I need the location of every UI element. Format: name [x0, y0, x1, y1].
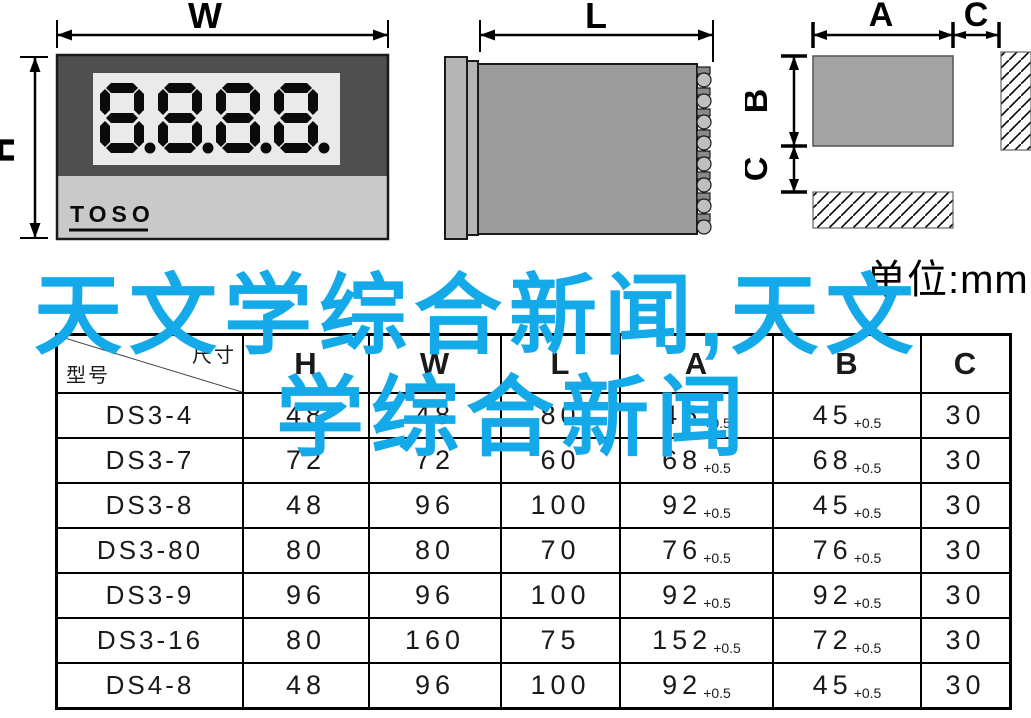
- value-cell-c: 30: [922, 529, 1009, 572]
- cell-value: 92: [662, 670, 702, 701]
- cell-value: 76: [813, 535, 853, 566]
- cell-value: DS3-16: [97, 625, 203, 656]
- arrowhead-icon: [30, 57, 41, 72]
- tolerance-value: +0.5: [703, 550, 731, 566]
- cell-value: DS4-8: [106, 670, 195, 701]
- cell-value: 96: [415, 670, 455, 701]
- tolerance-value: +0.5: [703, 685, 731, 701]
- value-cell-c: 30: [922, 574, 1009, 617]
- brand-logo: TOSO: [70, 201, 155, 227]
- value-cell-w: 96: [370, 574, 500, 617]
- bezel-flange: [445, 57, 467, 239]
- dim-label-l: L: [585, 0, 607, 36]
- value-cell-w: 80: [370, 529, 500, 572]
- cell-value: C: [954, 346, 977, 382]
- arrowhead-icon: [789, 132, 799, 146]
- cell-value: 72: [813, 625, 853, 656]
- cell-value: 100: [530, 580, 590, 611]
- value-cell-a: 92+0.5: [621, 484, 772, 527]
- tolerance-value: +0.5: [854, 460, 882, 476]
- arrowhead-icon: [789, 146, 799, 159]
- hatched-panel-bottom: [813, 192, 953, 228]
- model-cell: DS3-4: [58, 394, 242, 437]
- value-cell-b: 92+0.5: [774, 574, 920, 617]
- value-cell-c: 30: [922, 394, 1009, 437]
- value-cell-h: 96: [244, 574, 368, 617]
- cell-value: 45: [813, 400, 853, 431]
- cell-value: DS3-8: [106, 490, 195, 521]
- value-cell-c: 30: [922, 664, 1009, 707]
- model-cell: DS3-16: [58, 619, 242, 662]
- value-cell-w: 160: [370, 619, 500, 662]
- cell-value: 96: [415, 490, 455, 521]
- cell-value: 100: [530, 670, 590, 701]
- overlay-text-line2: 学综合新闻: [276, 374, 751, 462]
- tolerance-value: +0.5: [854, 505, 882, 521]
- value-cell-c: 30: [922, 619, 1009, 662]
- value-cell-l: 100: [502, 664, 619, 707]
- tolerance-value: +0.5: [703, 505, 731, 521]
- value-cell-w: 96: [370, 664, 500, 707]
- value-cell-h: 48: [244, 484, 368, 527]
- cell-value: 68: [813, 445, 853, 476]
- value-cell-c: 30: [922, 439, 1009, 482]
- value-cell-c: 30: [922, 484, 1009, 527]
- cell-value: 30: [945, 580, 985, 611]
- cell-value: 92: [813, 580, 853, 611]
- arrowhead-icon: [373, 30, 388, 41]
- arrowhead-icon: [480, 30, 495, 41]
- dim-label-w: W: [188, 0, 222, 36]
- cell-value: 48: [286, 490, 326, 521]
- tolerance-value: +0.5: [854, 415, 882, 431]
- cell-value: DS3-4: [106, 400, 195, 431]
- cell-value: 45: [813, 670, 853, 701]
- cell-value: 100: [530, 490, 590, 521]
- front-view-drawing: W H TOSO: [0, 0, 420, 260]
- cell-value: 30: [945, 445, 985, 476]
- cutout-rect: [813, 56, 953, 146]
- tolerance-value: +0.5: [703, 595, 731, 611]
- arrowhead-icon: [789, 179, 799, 192]
- model-cell: DS4-8: [58, 664, 242, 707]
- model-cell: DS3-8: [58, 484, 242, 527]
- value-cell-l: 100: [502, 484, 619, 527]
- cell-value: 96: [415, 580, 455, 611]
- value-cell-h: 48: [244, 664, 368, 707]
- value-cell-l: 75: [502, 619, 619, 662]
- value-cell-l: 70: [502, 529, 619, 572]
- bezel-lip: [467, 61, 478, 235]
- value-cell-b: 45+0.5: [774, 664, 920, 707]
- dim-label-a: A: [869, 0, 894, 34]
- cell-value: DS3-80: [97, 535, 203, 566]
- model-cell: DS3-7: [58, 439, 242, 482]
- column-header-c: C: [922, 336, 1009, 392]
- value-cell-l: 100: [502, 574, 619, 617]
- value-cell-b: 76+0.5: [774, 529, 920, 572]
- cell-value: 30: [945, 625, 985, 656]
- arrowhead-icon: [789, 56, 799, 70]
- panel-cutout-drawing: A C B C: [745, 0, 1031, 250]
- value-cell-a: 152+0.5: [621, 619, 772, 662]
- tolerance-value: +0.5: [854, 550, 882, 566]
- arrowhead-icon: [939, 30, 953, 40]
- model-cell: DS3-9: [58, 574, 242, 617]
- cell-value: 45: [813, 490, 853, 521]
- dim-label-c-left: C: [745, 157, 775, 182]
- model-cell: DS3-80: [58, 529, 242, 572]
- value-cell-b: 68+0.5: [774, 439, 920, 482]
- cell-value: 92: [662, 490, 702, 521]
- value-cell-a: 92+0.5: [621, 664, 772, 707]
- arrowhead-icon: [813, 30, 827, 40]
- value-cell-b: 45+0.5: [774, 394, 920, 437]
- hatched-panel-right: [1001, 52, 1031, 150]
- value-cell-b: 45+0.5: [774, 484, 920, 527]
- cell-value: 76: [662, 535, 702, 566]
- terminal-strip: [697, 67, 711, 234]
- dim-label-c-top: C: [964, 0, 989, 34]
- cell-value: DS3-9: [106, 580, 195, 611]
- cell-value: 75: [540, 625, 580, 656]
- value-cell-h: 80: [244, 619, 368, 662]
- cell-value: 152: [652, 625, 712, 656]
- meter-body-side: [478, 64, 697, 234]
- tolerance-value: +0.5: [713, 640, 741, 656]
- overlay-text-line1: 天文学综合新闻,天文: [34, 272, 920, 360]
- arrowhead-icon: [30, 223, 41, 238]
- arrowhead-icon: [57, 30, 72, 41]
- value-cell-h: 80: [244, 529, 368, 572]
- side-view-drawing: L: [430, 0, 740, 260]
- dim-label-b: B: [745, 89, 775, 114]
- cell-value: 70: [540, 535, 580, 566]
- spec-sheet-page: W H TOSO L: [0, 0, 1031, 718]
- cell-value: 30: [945, 535, 985, 566]
- cell-value: 80: [415, 535, 455, 566]
- tolerance-value: +0.5: [854, 640, 882, 656]
- cell-value: 96: [286, 580, 326, 611]
- tolerance-value: +0.5: [854, 595, 882, 611]
- value-cell-b: 72+0.5: [774, 619, 920, 662]
- tolerance-value: +0.5: [854, 685, 882, 701]
- cell-value: 30: [945, 490, 985, 521]
- value-cell-a: 76+0.5: [621, 529, 772, 572]
- cell-value: 30: [945, 400, 985, 431]
- cell-value: 80: [286, 535, 326, 566]
- value-cell-a: 92+0.5: [621, 574, 772, 617]
- arrowhead-icon: [698, 30, 713, 41]
- cell-value: 92: [662, 580, 702, 611]
- cell-value: DS3-7: [106, 445, 195, 476]
- cell-value: 80: [286, 625, 326, 656]
- value-cell-w: 96: [370, 484, 500, 527]
- cell-value: 160: [405, 625, 465, 656]
- cell-value: 30: [945, 670, 985, 701]
- dim-label-h: H: [0, 137, 22, 163]
- cell-value: 48: [286, 670, 326, 701]
